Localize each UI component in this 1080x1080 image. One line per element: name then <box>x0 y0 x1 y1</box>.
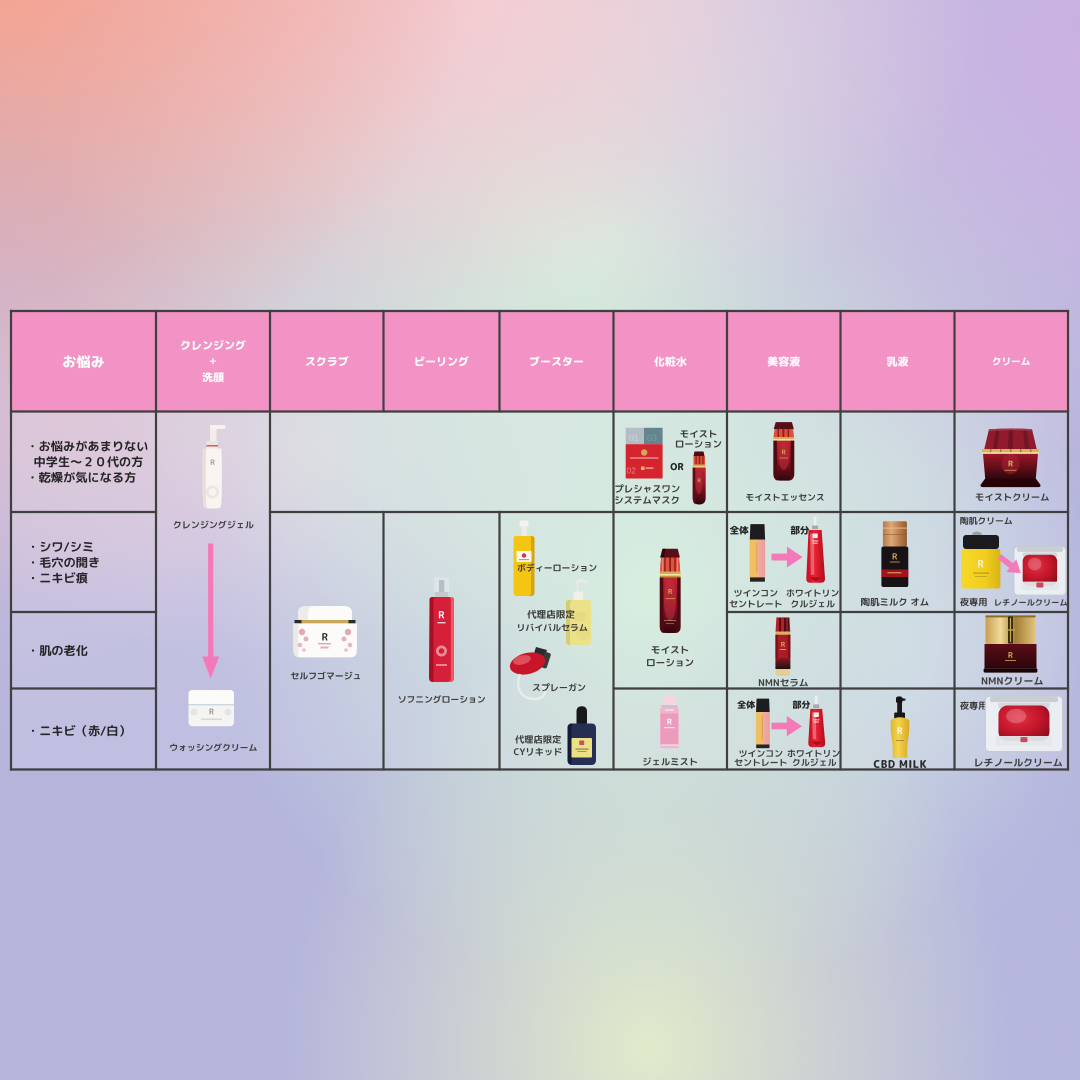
svg-text:01: 01 <box>629 433 639 443</box>
svg-text:02: 02 <box>627 466 637 476</box>
svg-text:03: 03 <box>647 433 657 443</box>
